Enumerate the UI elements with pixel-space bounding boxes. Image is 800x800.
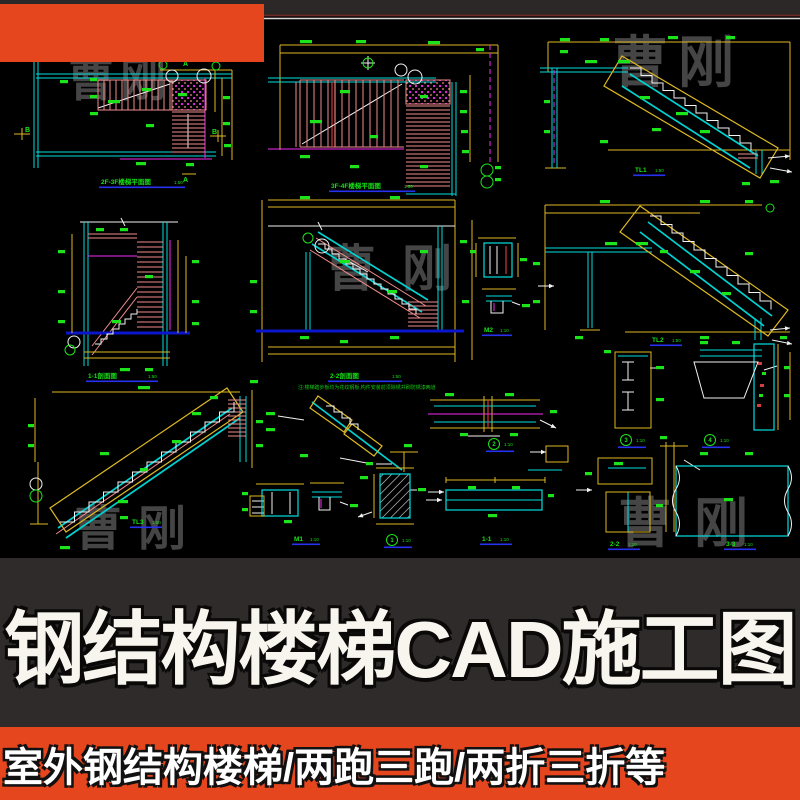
drawing-title: M2 bbox=[484, 327, 493, 334]
drawing-title: 1-1剖面图 bbox=[88, 371, 117, 380]
drawing-title: TL1 bbox=[635, 167, 647, 174]
main-title: 钢结构楼梯CAD施工图 bbox=[4, 585, 795, 701]
title-underline bbox=[608, 549, 640, 551]
title-underline bbox=[99, 187, 185, 189]
title-underline bbox=[329, 191, 415, 193]
svg-text:1:10: 1:10 bbox=[636, 438, 645, 443]
svg-text:1:10: 1:10 bbox=[744, 542, 753, 547]
svg-text:1:50: 1:50 bbox=[404, 184, 413, 189]
title-underline bbox=[328, 381, 402, 383]
drawing-title: 1-1 bbox=[482, 536, 492, 543]
drawing-title: 2F-3F楼梯平面图 bbox=[101, 177, 151, 186]
drawing-title: TL2 bbox=[652, 337, 664, 344]
svg-text:1:50: 1:50 bbox=[392, 374, 401, 379]
watermark-text: 曹刚 bbox=[74, 503, 202, 556]
general-note: 注:楼梯踏步板均为花纹钢板,构件安装前须除锈并刷防锈漆两道 bbox=[298, 384, 436, 391]
section-mark: B bbox=[212, 129, 217, 136]
product-poster: 曹刚 曹刚 曹刚 曹刚 曹刚 2F-3F楼梯平面图 1:50 3F-4F楼梯平面… bbox=[0, 0, 800, 800]
title-underline bbox=[482, 335, 512, 337]
main-title-band: 钢结构楼梯CAD施工图 bbox=[0, 558, 800, 727]
subtitle: 室外钢结构楼梯/两跑三跑/两折三折等 bbox=[0, 735, 665, 793]
title-underline bbox=[292, 544, 320, 546]
drawing-title: 3-3 bbox=[726, 541, 736, 548]
section-mark: A bbox=[183, 61, 188, 68]
svg-text:1:10: 1:10 bbox=[504, 442, 513, 447]
svg-text:1:10: 1:10 bbox=[628, 542, 637, 547]
drawing-title: 2-2剖面图 bbox=[330, 371, 359, 380]
svg-text:1:10: 1:10 bbox=[720, 438, 729, 443]
section-mark: A bbox=[183, 177, 188, 184]
svg-text:1:50: 1:50 bbox=[148, 374, 157, 379]
svg-text:1:10: 1:10 bbox=[500, 537, 509, 542]
drawing-title: M1 bbox=[294, 536, 303, 543]
section-mark: B bbox=[25, 127, 30, 134]
svg-text:1:10: 1:10 bbox=[500, 328, 509, 333]
title-underline bbox=[86, 381, 158, 383]
svg-text:1:50: 1:50 bbox=[174, 180, 183, 185]
svg-text:1:50: 1:50 bbox=[152, 520, 161, 525]
title-underline bbox=[724, 549, 756, 551]
drawing-title: 2-2 bbox=[610, 541, 620, 548]
drawing-title: TL3 bbox=[132, 519, 144, 526]
title-underline bbox=[650, 345, 682, 347]
watermark-text: 曹刚 bbox=[612, 31, 744, 94]
svg-text:1:10: 1:10 bbox=[402, 538, 411, 543]
svg-text:1:50: 1:50 bbox=[655, 168, 664, 173]
cad-sheet: 曹刚 曹刚 曹刚 曹刚 曹刚 2F-3F楼梯平面图 1:50 3F-4F楼梯平面… bbox=[0, 0, 800, 558]
title-underline bbox=[130, 527, 162, 529]
title-underline bbox=[633, 175, 665, 177]
svg-text:1:10: 1:10 bbox=[310, 537, 319, 542]
orange-corner-block bbox=[0, 4, 264, 62]
cad-linework: 曹刚 曹刚 曹刚 曹刚 曹刚 2F-3F楼梯平面图 1:50 3F-4F楼梯平面… bbox=[0, 0, 800, 558]
drawing-title: 3F-4F楼梯平面图 bbox=[331, 181, 381, 190]
subtitle-band: 室外钢结构楼梯/两跑三跑/两折三折等 bbox=[0, 727, 800, 800]
title-underline bbox=[480, 544, 512, 546]
svg-text:1:50: 1:50 bbox=[672, 338, 681, 343]
